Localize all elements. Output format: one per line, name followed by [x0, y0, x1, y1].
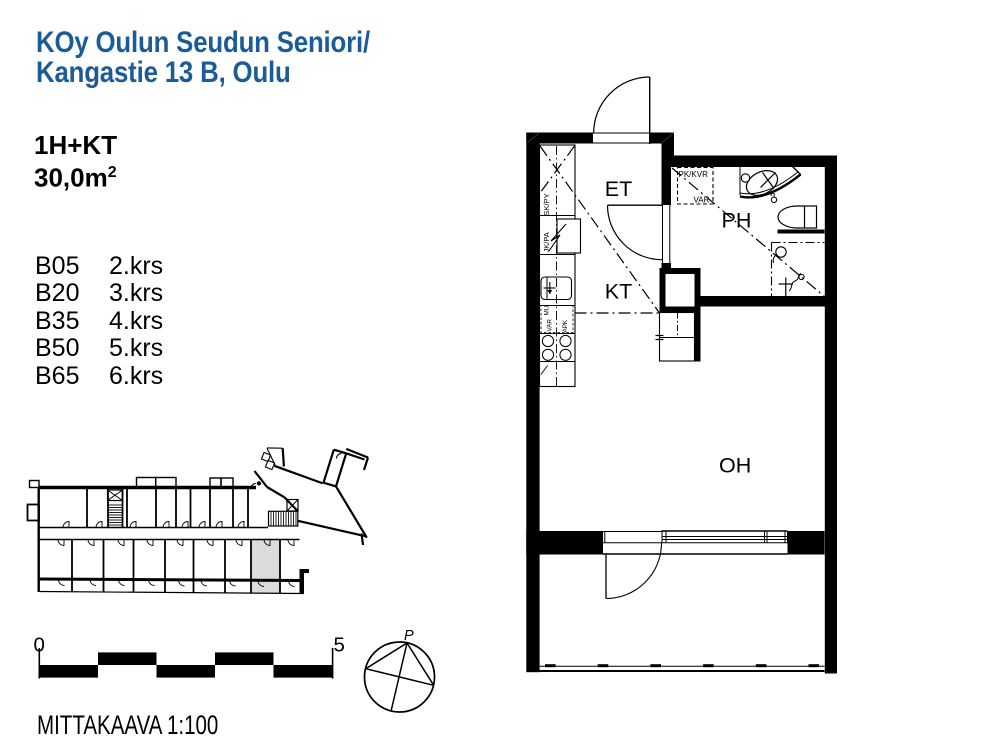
svg-text:5: 5 — [334, 634, 345, 657]
svg-text:VAR: VAR — [547, 319, 554, 332]
svg-text:PH: PH — [722, 208, 752, 232]
svg-text:MU: MU — [544, 305, 551, 315]
svg-text:PK/KVR: PK/KVR — [679, 170, 709, 179]
svg-text:P: P — [404, 628, 414, 644]
svg-text:ET: ET — [605, 177, 632, 201]
svg-text:VAR: VAR — [694, 196, 710, 205]
svg-text:APK: APK — [562, 319, 569, 332]
svg-text:SK/PY: SK/PY — [542, 193, 551, 215]
svg-text:KT: KT — [605, 279, 632, 303]
svg-text:JK/PA: JK/PA — [542, 232, 551, 252]
svg-text:OH: OH — [719, 453, 751, 477]
